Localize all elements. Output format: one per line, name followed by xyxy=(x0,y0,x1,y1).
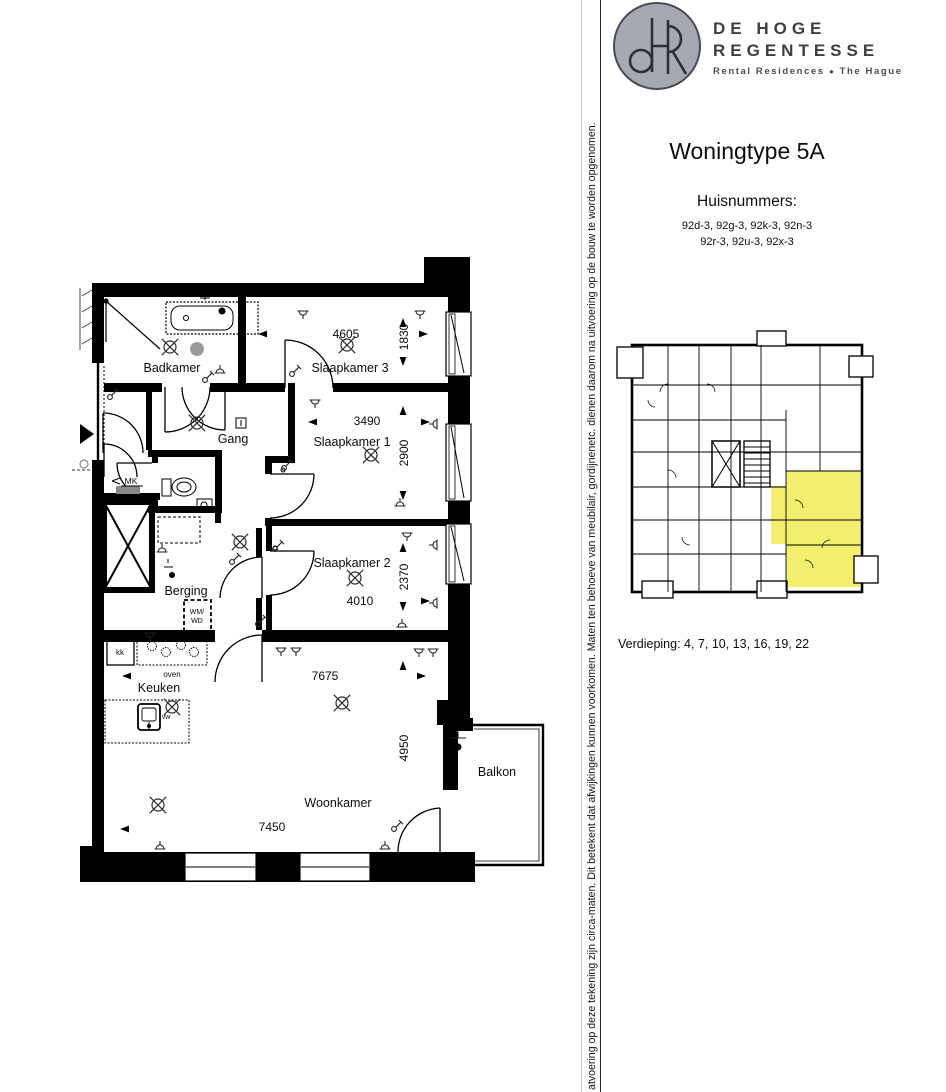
room-label-slaapkamer2: Slaapkamer 2 xyxy=(313,556,390,570)
door-balkon xyxy=(398,808,440,852)
dimension-arrows xyxy=(120,318,430,832)
label-mk: MK xyxy=(125,476,138,486)
doorbell-icon xyxy=(80,460,88,468)
window-right-wall xyxy=(446,312,471,584)
room-label-woonkamer: Woonkamer xyxy=(304,796,371,810)
sink-icon xyxy=(138,704,160,730)
room-label-balkon: Balkon xyxy=(478,765,516,779)
dim-sl1-depth: 2900 xyxy=(397,439,411,466)
door-slaapkamer2 xyxy=(270,546,314,595)
huisnummers-label: Huisnummers: xyxy=(617,193,877,211)
highlighted-unit xyxy=(771,471,860,587)
room-label-slaapkamer1: Slaapkamer 1 xyxy=(313,435,390,449)
kitchen-island xyxy=(105,700,189,743)
room-label-berging: Berging xyxy=(164,584,207,598)
vent-icon xyxy=(190,342,204,356)
sheet-frame-line xyxy=(600,0,601,1092)
room-label-badkamer: Badkamer xyxy=(144,361,201,375)
staircase-icon xyxy=(744,441,770,487)
brand-logo xyxy=(610,0,710,95)
label-wm: WM/ xyxy=(190,609,204,616)
door-vestibule xyxy=(104,444,137,477)
verdieping-note: Verdieping: 4, 7, 10, 13, 16, 19, 22 xyxy=(618,637,809,651)
disclaimer-text: atvoering op deze tekening zijn circa-ma… xyxy=(586,122,598,1090)
huisnummers-line1: 92d-3, 92g-3, 92k-3, 92n-3 xyxy=(617,218,877,234)
label-kk: kk xyxy=(116,648,125,657)
shower-icon xyxy=(104,299,160,349)
entrance-arrow-icon xyxy=(80,424,94,444)
label-vw: vw xyxy=(162,714,172,721)
walls xyxy=(80,257,475,882)
dim-sl3-width: 4605 xyxy=(333,327,360,341)
brand-tagline-right: The Hague xyxy=(840,66,903,77)
brand-tagline: Rental Residences ● The Hague xyxy=(713,66,903,77)
dimension-labels: 4605 1830 3490 2900 4010 2370 7675 4950 … xyxy=(259,323,411,834)
brand-tagline-bullet-icon: ● xyxy=(829,67,835,76)
unit-title: Woningtype 5A xyxy=(617,138,877,165)
brand-name-line2: REGENTESSE xyxy=(713,40,879,62)
label-wd: WD xyxy=(191,618,203,625)
floor-plan-svg: Badkamer Slaapkamer 3 Slaapkamer 1 Slaap… xyxy=(0,0,580,1092)
door-woonkamer xyxy=(215,635,262,682)
label-oven: oven xyxy=(163,670,180,679)
door-slaapkamer1 xyxy=(270,468,314,518)
door-berging xyxy=(220,557,262,598)
building-overview-plan xyxy=(605,322,890,608)
dim-sl2-depth: 2370 xyxy=(397,563,411,590)
dim-woon-depth: 4950 xyxy=(397,734,411,761)
room-label-gang: Gang xyxy=(218,432,249,446)
floorplan-sheet: Badkamer Slaapkamer 3 Slaapkamer 1 Slaap… xyxy=(0,0,946,1092)
sheet-frame-line-left xyxy=(581,0,582,1092)
toilet-icon xyxy=(162,478,196,496)
ceiling-lights xyxy=(150,337,466,813)
room-label-slaapkamer3: Slaapkamer 3 xyxy=(311,361,388,375)
brand-tagline-left: Rental Residences xyxy=(713,66,825,77)
shaft-icon xyxy=(104,502,152,590)
door-front xyxy=(103,413,143,453)
cv-point-icon xyxy=(164,559,175,578)
intercom-icon xyxy=(236,418,246,428)
elevator-core-icon xyxy=(712,441,740,487)
dim-sl1-width: 3490 xyxy=(354,414,381,428)
huisnummers-line2: 92r-3, 92u-3, 92x-3 xyxy=(617,234,877,250)
dim-sl3-depth: 1830 xyxy=(397,323,411,350)
dim-woon-width-lower: 7450 xyxy=(259,820,286,834)
boiler-icon xyxy=(158,517,200,543)
brand-name: DE HOGE REGENTESSE xyxy=(713,18,879,62)
dim-woon-width: 7675 xyxy=(312,669,339,683)
brand-name-line1: DE HOGE xyxy=(713,18,879,40)
dim-sl2-width: 4010 xyxy=(347,594,374,608)
room-label-keuken: Keuken xyxy=(138,681,180,695)
